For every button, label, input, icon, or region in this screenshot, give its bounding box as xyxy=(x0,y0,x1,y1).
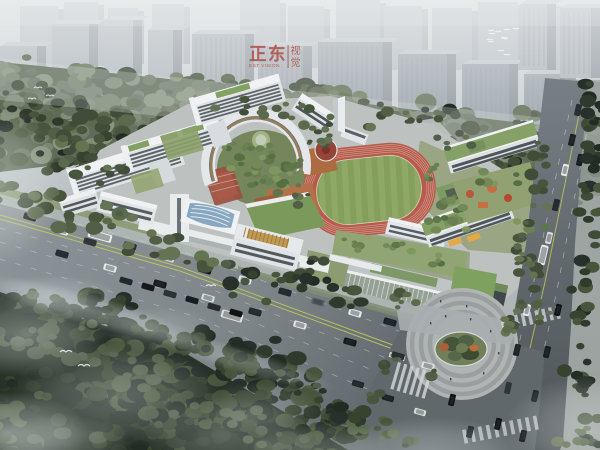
svg-text:EST VISION: EST VISION xyxy=(249,63,280,69)
svg-text:正东: 正东 xyxy=(249,44,287,64)
svg-text:觉: 觉 xyxy=(291,57,301,69)
svg-text:视: 视 xyxy=(291,44,301,57)
